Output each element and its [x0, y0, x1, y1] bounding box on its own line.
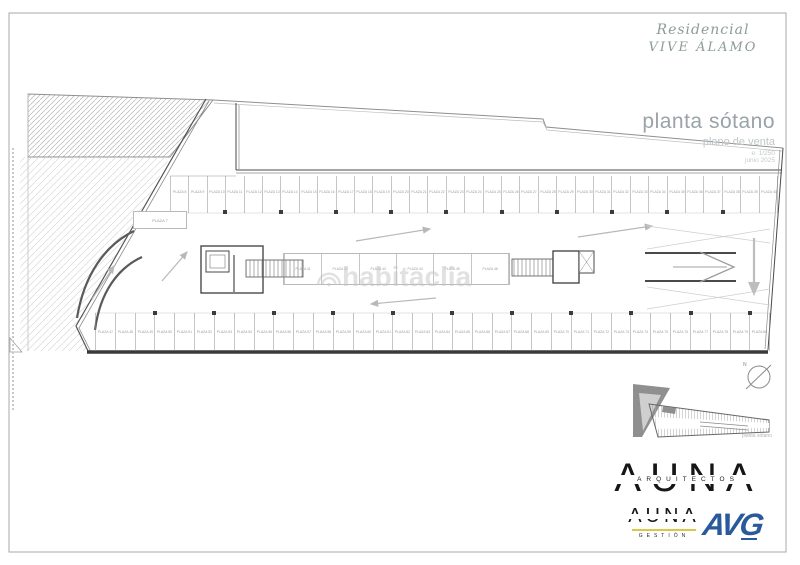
parking-stall: PLAZA 17	[337, 176, 355, 213]
parking-stall: PLAZA 53	[215, 313, 235, 351]
parking-stall-label: PLAZA 10	[209, 189, 224, 193]
parking-stall-label: PLAZA 54	[236, 329, 252, 333]
parking-stall: PLAZA 80	[750, 313, 770, 351]
structural-column	[331, 311, 335, 315]
parking-stall-label: PLAZA 61	[375, 329, 391, 333]
structural-column	[510, 311, 514, 315]
parking-stall-label: PLAZA 20	[393, 189, 408, 193]
parking-row-top: PLAZA 8PLAZA 9PLAZA 10PLAZA 11PLAZA 12PL…	[170, 176, 778, 213]
parking-row-middle: PLAZA 41PLAZA 42PLAZA 43PLAZA 44PLAZA 45…	[283, 253, 510, 285]
parking-stall-label: PLAZA 71	[573, 329, 589, 333]
parking-stall: PLAZA 20	[392, 176, 410, 213]
project-name-line2: VIVE ÁLAMO	[636, 40, 770, 55]
structural-column	[223, 210, 227, 214]
parking-stall: PLAZA 31	[594, 176, 612, 213]
plan-subtitle: plano de venta	[642, 136, 775, 148]
plan-title: planta sótano	[642, 110, 775, 134]
parking-stall-label: PLAZA 75	[653, 329, 669, 333]
parking-stall-label: PLAZA 8	[172, 189, 187, 193]
parking-stall: PLAZA 40	[760, 176, 778, 213]
parking-stall: PLAZA 44	[397, 254, 434, 284]
parking-stall-label: PLAZA 23	[448, 189, 463, 193]
structural-column	[272, 311, 276, 315]
avg-logo: AVG	[703, 508, 769, 548]
parking-stall-label: PLAZA 17	[338, 189, 353, 193]
parking-stall: PLAZA 30	[576, 176, 594, 213]
avg-logo-bar	[741, 538, 757, 540]
parking-stall: PLAZA 45	[434, 254, 471, 284]
parking-stall-label: PLAZA 49	[137, 329, 153, 333]
parking-stall: PLAZA 13	[263, 176, 281, 213]
parking-stall: PLAZA 37	[704, 176, 722, 213]
parking-stall-label: PLAZA 22	[430, 189, 445, 193]
parking-stall-label: PLAZA 74	[633, 329, 649, 333]
structural-column	[689, 311, 693, 315]
parking-stall-label: PLAZA 29	[559, 189, 574, 193]
parking-stall-label: PLAZA 42	[325, 266, 356, 270]
parking-stall: PLAZA 76	[671, 313, 691, 351]
parking-stall-label: PLAZA 13	[264, 189, 279, 193]
parking-stall: PLAZA 47	[95, 313, 116, 351]
parking-stall-label: PLAZA 64	[434, 329, 450, 333]
parking-stall: PLAZA 55	[255, 313, 275, 351]
parking-stall-label: PLAZA 55	[256, 329, 272, 333]
drawing-sheet: PLAZA 8PLAZA 9PLAZA 10PLAZA 11PLAZA 12PL…	[0, 0, 800, 565]
structural-column	[665, 210, 669, 214]
avg-logo-text: AVG	[701, 508, 772, 542]
parking-stall: PLAZA 33	[631, 176, 649, 213]
structural-column	[748, 311, 752, 315]
parking-stall-label: PLAZA 30	[577, 189, 592, 193]
structural-column	[500, 210, 504, 214]
parking-stall-label: PLAZA 56	[276, 329, 292, 333]
parking-stall: PLAZA 62	[393, 313, 413, 351]
parking-stall-label: PLAZA 48	[117, 329, 133, 333]
parking-stall-label: PLAZA 59	[335, 329, 351, 333]
parking-stall-label: PLAZA 26	[503, 189, 518, 193]
parking-row-bottom: PLAZA 47PLAZA 48PLAZA 49PLAZA 50PLAZA 51…	[95, 313, 770, 351]
parking-stall: PLAZA 41	[284, 254, 322, 284]
parking-stall: PLAZA 51	[175, 313, 195, 351]
parking-stall-label: PLAZA 32	[614, 189, 629, 193]
parking-stall: PLAZA 8	[170, 176, 189, 213]
parking-stall-label: PLAZA 19	[375, 189, 390, 193]
parking-stall-label: PLAZA 53	[216, 329, 232, 333]
structural-column	[555, 210, 559, 214]
project-name-line1: Residencial	[636, 22, 770, 38]
parking-stall-label: PLAZA 34	[650, 189, 665, 193]
parking-stall: PLAZA 78	[711, 313, 731, 351]
parking-stall: PLAZA 56	[274, 313, 294, 351]
parking-stall: PLAZA 71	[572, 313, 592, 351]
parking-stall: PLAZA 28	[539, 176, 557, 213]
parking-stall: PLAZA 22	[428, 176, 446, 213]
parking-stall: PLAZA 19	[373, 176, 391, 213]
parking-stall: PLAZA 39	[741, 176, 759, 213]
parking-stall: PLAZA 58	[314, 313, 334, 351]
structural-column	[334, 210, 338, 214]
parking-stall-label: PLAZA 47	[97, 329, 113, 333]
parking-stall-label: PLAZA 44	[400, 266, 431, 270]
parking-stall: PLAZA 77	[691, 313, 711, 351]
parking-stall: PLAZA 21	[410, 176, 428, 213]
parking-stall-label: PLAZA 67	[494, 329, 510, 333]
parking-stall: PLAZA 46	[472, 254, 509, 284]
parking-stall-label: PLAZA 31	[595, 189, 610, 193]
parking-stall: PLAZA 79	[731, 313, 751, 351]
parking-stall-label: PLAZA 73	[613, 329, 629, 333]
parking-stall-label: PLAZA 72	[593, 329, 609, 333]
auna-logo-subtitle: ARQUITECTOS	[612, 476, 764, 483]
auna-gestion-yellow-line	[632, 529, 696, 531]
parking-stall-label: PLAZA 28	[540, 189, 555, 193]
parking-stall: PLAZA 18	[355, 176, 373, 213]
parking-stall: PLAZA 32	[612, 176, 630, 213]
parking-stall-label: PLAZA 57	[296, 329, 312, 333]
parking-stall-label: PLAZA 46	[474, 266, 505, 270]
parking-stall: PLAZA 70	[552, 313, 572, 351]
parking-stall-label: PLAZA 16	[319, 189, 334, 193]
parking-stall-label: PLAZA 25	[485, 189, 500, 193]
parking-stall: PLAZA 26	[502, 176, 520, 213]
structural-column	[450, 311, 454, 315]
parking-stall: PLAZA 63	[413, 313, 433, 351]
parking-stall: PLAZA 42	[322, 254, 359, 284]
parking-stall: PLAZA 66	[473, 313, 493, 351]
structural-column	[391, 311, 395, 315]
parking-stall: PLAZA 16	[318, 176, 336, 213]
parking-stall-label: PLAZA 45	[437, 266, 468, 270]
parking-stall-label: PLAZA 39	[742, 189, 757, 193]
parking-stall: PLAZA 15	[300, 176, 318, 213]
parking-stall-label: PLAZA 60	[355, 329, 371, 333]
structural-column	[153, 311, 157, 315]
parking-stall-label: PLAZA 43	[362, 266, 393, 270]
structural-column	[610, 210, 614, 214]
parking-stall-label: PLAZA 70	[553, 329, 569, 333]
north-label: N	[743, 362, 747, 368]
parking-stall-label: PLAZA 76	[672, 329, 688, 333]
auna-arquitectos-logo: AUNA ARQUITECTOS	[612, 456, 764, 504]
structural-column	[279, 210, 283, 214]
parking-stall: PLAZA 23	[447, 176, 465, 213]
parking-stall: PLAZA 67	[493, 313, 513, 351]
parking-stall: PLAZA 48	[116, 313, 136, 351]
parking-stall-label: PLAZA 33	[632, 189, 647, 193]
parking-stall-label: PLAZA 40	[761, 189, 776, 193]
parking-stall: PLAZA 74	[631, 313, 651, 351]
parking-stall-label: PLAZA 78	[712, 329, 728, 333]
parking-stall-label: PLAZA 21	[411, 189, 426, 193]
parking-stall: PLAZA 34	[649, 176, 667, 213]
parking-stall-7: PLAZA 7	[133, 211, 187, 229]
parking-stall: PLAZA 72	[592, 313, 612, 351]
plan-title-block: planta sótano plano de venta e: 1/250 ju…	[642, 110, 775, 164]
structural-column	[629, 311, 633, 315]
parking-stall: PLAZA 60	[354, 313, 374, 351]
parking-stall-label: PLAZA 27	[522, 189, 537, 193]
parking-stall: PLAZA 49	[136, 313, 156, 351]
parking-stall-label: PLAZA 15	[301, 189, 316, 193]
parking-stall: PLAZA 61	[374, 313, 394, 351]
parking-stall: PLAZA 29	[557, 176, 575, 213]
structural-column	[569, 311, 573, 315]
margin-disclaimer-note	[12, 148, 14, 410]
parking-stall-label: PLAZA 66	[474, 329, 490, 333]
parking-stall-label: PLAZA 38	[724, 189, 739, 193]
parking-stall-label: PLAZA 52	[197, 329, 213, 333]
parking-stall-label: PLAZA 62	[395, 329, 411, 333]
auna-gestion-logo: AUNA GESTIÓN	[627, 505, 701, 539]
parking-stall-label: PLAZA 9	[191, 189, 206, 193]
structural-column	[444, 210, 448, 214]
parking-stall-label: PLAZA 68	[514, 329, 530, 333]
parking-stall: PLAZA 27	[520, 176, 538, 213]
parking-stall: PLAZA 64	[433, 313, 453, 351]
parking-stall: PLAZA 14	[281, 176, 299, 213]
parking-stall: PLAZA 54	[235, 313, 255, 351]
parking-stall: PLAZA 59	[334, 313, 354, 351]
parking-stall: PLAZA 36	[686, 176, 704, 213]
inset-caption: planta sótano	[700, 433, 772, 439]
auna-gestion-subtitle: GESTIÓN	[627, 533, 701, 539]
parking-stall-label: PLAZA 18	[356, 189, 371, 193]
parking-stall: PLAZA 73	[612, 313, 632, 351]
parking-stall-label: PLAZA 77	[692, 329, 708, 333]
parking-stall-label: PLAZA 69	[534, 329, 550, 333]
plan-date: junio 2025	[642, 157, 775, 164]
parking-stall-label: PLAZA 58	[316, 329, 332, 333]
parking-stall-label: PLAZA 65	[454, 329, 470, 333]
structural-column	[389, 210, 393, 214]
structural-column	[212, 311, 216, 315]
parking-stall-label: PLAZA 35	[669, 189, 684, 193]
parking-stall-label: PLAZA 80	[752, 329, 768, 333]
parking-stall: PLAZA 68	[512, 313, 532, 351]
parking-stall: PLAZA 24	[465, 176, 483, 213]
parking-stall: PLAZA 43	[360, 254, 397, 284]
parking-stall: PLAZA 12	[245, 176, 263, 213]
parking-stall: PLAZA 11	[226, 176, 244, 213]
plan-scale: e: 1/250	[642, 150, 775, 157]
parking-stall-label: PLAZA 50	[157, 329, 173, 333]
parking-stall-label: PLAZA 41	[288, 266, 319, 270]
parking-stall: PLAZA 52	[195, 313, 215, 351]
structural-column	[721, 210, 725, 214]
parking-stall-label: PLAZA 24	[467, 189, 482, 193]
parking-stall: PLAZA 65	[453, 313, 473, 351]
parking-stall: PLAZA 57	[294, 313, 314, 351]
parking-stall: PLAZA 9	[189, 176, 207, 213]
parking-stall: PLAZA 35	[668, 176, 686, 213]
project-title: Residencial VIVE ÁLAMO	[636, 22, 770, 55]
parking-stall-label: PLAZA 51	[177, 329, 193, 333]
parking-stall-label: PLAZA 12	[246, 189, 261, 193]
parking-stall-label: PLAZA 79	[732, 329, 748, 333]
parking-stall-label: PLAZA 11	[227, 189, 242, 193]
parking-stall: PLAZA 75	[651, 313, 671, 351]
parking-stall-label: PLAZA 63	[415, 329, 431, 333]
parking-stall: PLAZA 69	[532, 313, 552, 351]
parking-stall: PLAZA 10	[208, 176, 226, 213]
parking-stall: PLAZA 38	[723, 176, 741, 213]
parking-stall-label: PLAZA 36	[687, 189, 702, 193]
parking-stall: PLAZA 25	[484, 176, 502, 213]
parking-stall-label: PLAZA 14	[283, 189, 298, 193]
parking-stall: PLAZA 50	[155, 313, 175, 351]
auna-gestion-stripe	[627, 514, 701, 519]
parking-stall-label: PLAZA 37	[706, 189, 721, 193]
